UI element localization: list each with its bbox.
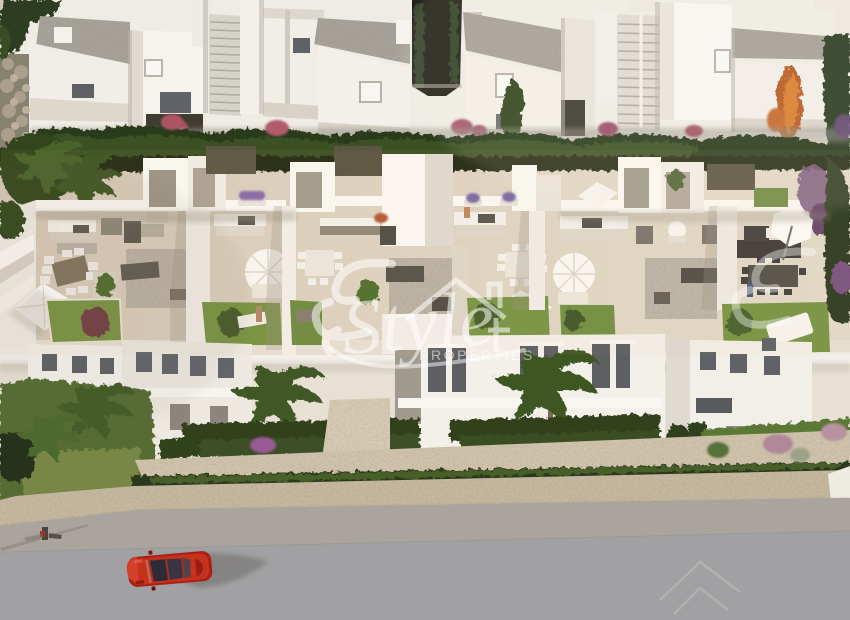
svg-text:PROPERTIES: PROPERTIES <box>419 347 535 363</box>
